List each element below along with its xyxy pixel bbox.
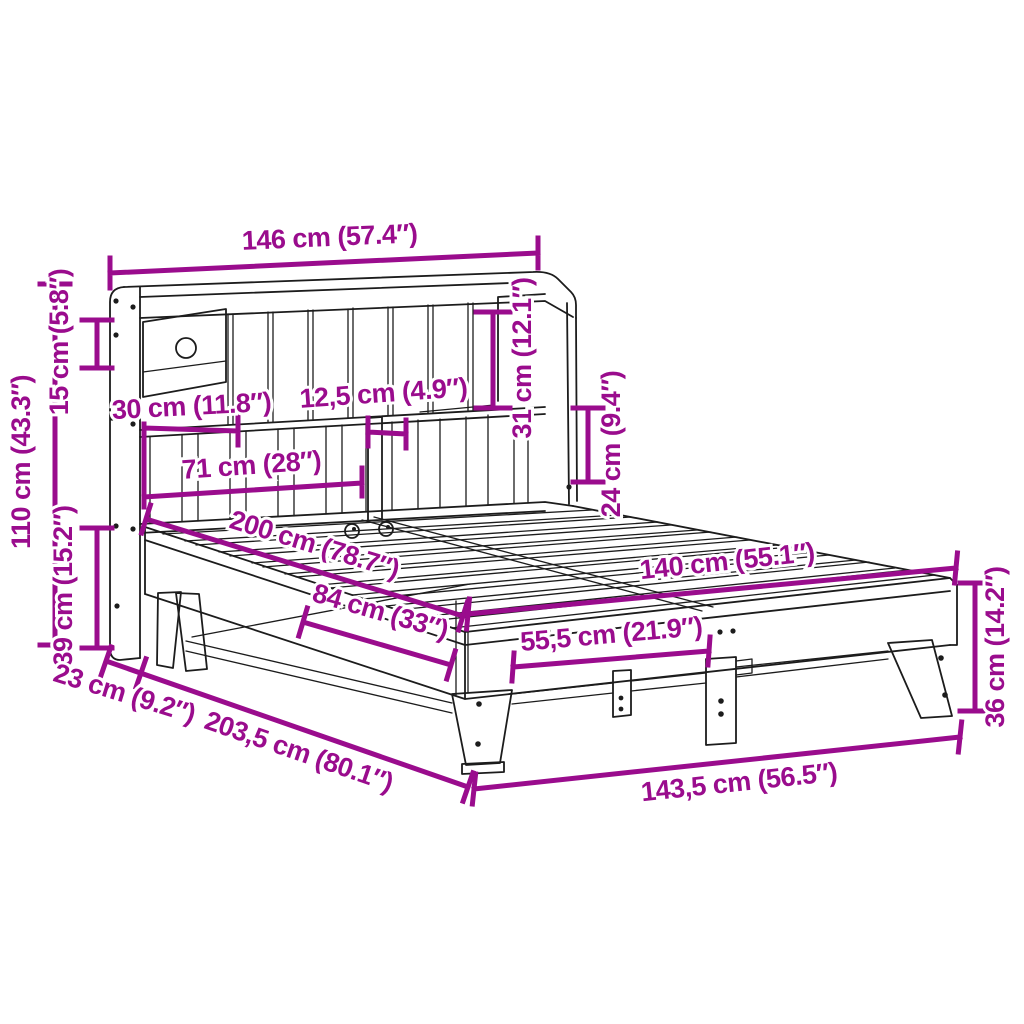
dimension-label-39cm: 39 cm (15.2″)	[48, 505, 78, 666]
dimension-label-24cm: 24 cm (9.4″)	[596, 371, 626, 518]
diagram-canvas: 146 cm (57.4″) 110 cm (43.3″) 15 cm (5.8…	[0, 0, 1024, 1024]
headboard-side-panel	[109, 287, 140, 660]
dimension-label-110cm: 110 cm (43.3″)	[6, 375, 36, 549]
dimension-base-height: 39 cm (15.2″)	[48, 505, 112, 666]
headboard-bottom-rail	[140, 502, 573, 533]
dimension-bed-width: 140 cm (55.1″)	[467, 537, 958, 629]
bed-frame-diagram: 146 cm (57.4″) 110 cm (43.3″) 15 cm (5.8…	[0, 0, 1024, 1024]
dimension-label-140cm: 140 cm (55.1″)	[638, 537, 816, 585]
dimension-headboard-depth: 23 cm (9.2″) 203,5 cm (80.1″)	[50, 647, 473, 801]
dimension-label-36cm: 36 cm (14.2″)	[980, 566, 1010, 727]
dimension-label-143-5cm: 143,5 cm (56.5″)	[639, 757, 838, 807]
dimension-label-12-5cm: 12,5 cm (4.9″)	[299, 372, 469, 414]
dimension-label-30cm: 30 cm (11.8″)	[111, 387, 272, 425]
dimension-foot-end-height: 36 cm (14.2″)	[960, 566, 1010, 727]
dimension-headboard-width: 146 cm (57.4″)	[110, 218, 538, 288]
dimension-label-71cm: 71 cm (28″)	[181, 445, 322, 485]
dimension-shelf-span-width: 71 cm (28″)	[144, 445, 362, 497]
dimension-shelf-opening-height: 31 cm (12.1″)	[476, 277, 537, 438]
dimension-lower-opening-height: 24 cm (9.4″)	[573, 371, 626, 518]
dimension-label-15cm: 15 cm (5.8″)	[44, 269, 74, 416]
dimension-label-31cm: 31 cm (12.1″)	[507, 277, 537, 438]
dimension-label-146cm: 146 cm (57.4″)	[241, 218, 418, 256]
dimension-outer-width: 143,5 cm (56.5″)	[472, 722, 961, 807]
dimension-leg-spacing: 55,5 cm (21.9″)	[512, 611, 710, 681]
dimension-top-shelf-height: 15 cm (5.8″)	[44, 269, 112, 416]
